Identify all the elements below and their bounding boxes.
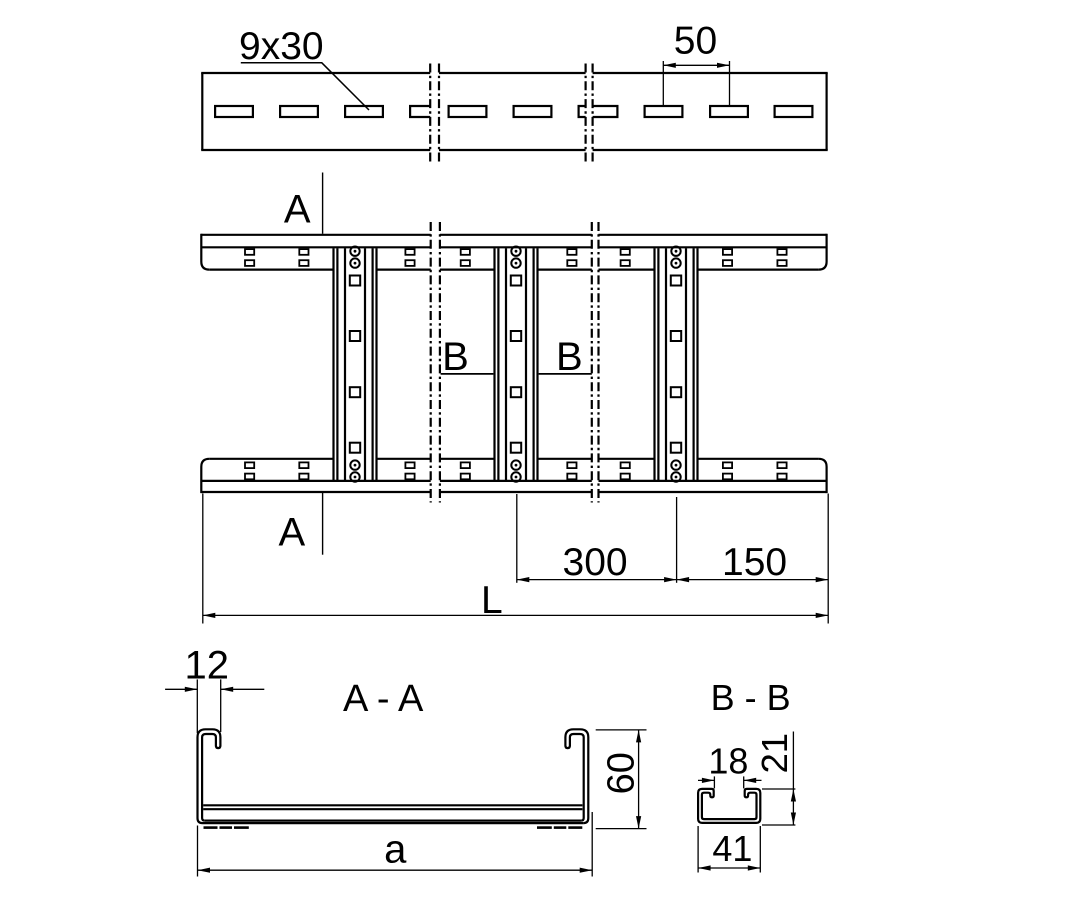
svg-text:B - B: B - B — [711, 677, 791, 718]
svg-text:300: 300 — [563, 541, 628, 584]
svg-text:12: 12 — [185, 644, 230, 688]
svg-text:50: 50 — [674, 20, 717, 63]
svg-text:B: B — [442, 335, 469, 379]
svg-text:18: 18 — [708, 740, 748, 781]
svg-text:150: 150 — [722, 541, 787, 584]
svg-text:9x30: 9x30 — [239, 25, 324, 68]
svg-text:B: B — [556, 335, 583, 379]
svg-text:21: 21 — [754, 733, 795, 774]
svg-text:A: A — [279, 511, 306, 555]
svg-text:41: 41 — [712, 828, 752, 869]
svg-text:L: L — [481, 579, 503, 622]
svg-text:a: a — [384, 828, 407, 872]
svg-text:A: A — [284, 187, 311, 231]
svg-text:A - A: A - A — [343, 678, 424, 720]
svg-text:60: 60 — [600, 752, 642, 794]
